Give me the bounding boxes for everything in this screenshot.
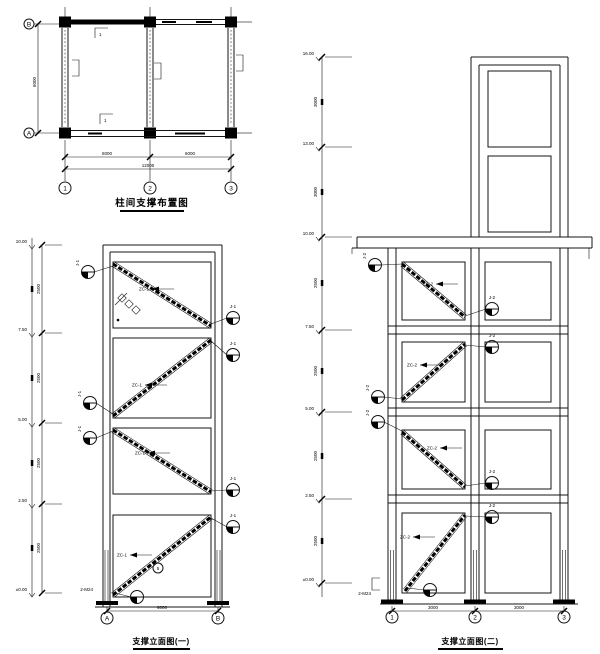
left-elev-dim-bottom-label: 6000 [157,605,168,610]
plan-row-grid-bubbles: B A [24,19,59,138]
dim-seg-label: 2500 [36,283,41,294]
plan-view: 1 1 B A 6000 6000 6 [24,7,252,211]
anchor-tag-label: 2-M24 [358,591,371,596]
brace-panel-1 [112,262,213,328]
grid-bubble-label: 3 [562,615,566,622]
plan-columns [59,17,237,139]
left-elevation: 10.00 7.50 5.00 2.50 ±0.00 2500 2500 250… [16,238,240,649]
grid-bubble-label: B [216,616,220,623]
grid-bubble-A-label: A [27,131,32,138]
plan-left-dimension: 6000 [32,21,41,136]
brace-panel-2 [112,338,213,418]
left-elev-title: 支撑立面图(一) [131,636,190,649]
left-elev-brace-tags: ZC-1 ZC-1 ZC-1 ZC-1 5 [117,287,174,574]
callout-label: J-1 [230,476,237,481]
brace-tag: ZC-2 [423,282,458,287]
detail-callout: J-1 [77,390,113,414]
right-elev-title-text: 支撑立面图(二) [440,636,498,646]
level-label: ±0.00 [303,577,315,582]
left-elev-weld-symbol-cluster [115,293,140,321]
level-label: 13.00 [303,141,315,146]
right-elev-braces [401,262,467,593]
dim-seg-label: 2500 [313,450,318,461]
callout-label: J-1 [230,304,237,309]
detail-callout: J-2 [465,469,499,490]
brace-panel-1 [401,262,467,319]
brace-panel-4 [404,513,467,593]
brace-tag: ZC-1 [117,553,152,558]
brace-panel-3 [401,430,467,489]
callout-label: J-1 [75,259,80,266]
section-mark-bottom-label: 1 [104,118,107,123]
right-elev-dim-seg1-label: 3000 [428,605,439,610]
detail-callout: J-1 [75,259,113,278]
anchor-tag-label: 2-M24 [80,587,93,592]
plan-dim-seg2-label: 6000 [185,151,196,156]
brace-tag-label: ZC-2 [427,446,437,451]
callout-label: J-1 [77,390,82,397]
level-label: 7.50 [18,327,27,332]
plan-column-lines [62,28,234,127]
plan-dim-total-label: 12000 [142,163,155,168]
brace-tag: ZC-2 [427,446,462,451]
callout-label: J-2 [489,295,496,300]
grid-bubble-3-label: 3 [229,186,233,193]
grid-bubble-B-label: B [27,22,31,29]
dim-seg-label: 2500 [36,372,41,383]
brace-panel-2 [401,342,467,402]
plan-bottom-dimensions: 6000 6000 12000 1 2 3 [59,140,237,194]
level-label: 10.00 [16,239,28,244]
right-elev-dim-seg2-label: 3000 [514,605,525,610]
plan-section-mark-top: 1 [95,28,108,38]
level-label: 2.50 [305,493,314,498]
plan-dim-left-label: 6000 [32,76,37,87]
right-elev-callouts: J-2 J-2 J-2 J-2 [362,252,499,596]
callout-label: J-2 [362,252,367,259]
section-mark-top-label: 1 [99,32,102,37]
brace-tag-label: ZC-2 [407,363,417,368]
callout-label: J-2 [489,333,496,338]
brace-tag-label: ZC-1 [117,553,127,558]
plan-title: 柱间支撑布置图 [115,197,189,211]
brace-tag-label: ZC-2 [400,535,410,540]
callout-label: J-2 [365,384,370,391]
callout-label: J-1 [77,425,82,432]
dim-seg-label: 2500 [36,542,41,553]
callout-label: J-2 [489,503,496,508]
detail-callout: J-1 [77,425,113,444]
level-label: 7.50 [305,324,314,329]
plan-beams [71,20,225,137]
left-elev-title-text: 支撑立面图(一) [131,636,189,646]
grid-bubble-label: A [105,616,110,623]
right-elev-dimension-column: 16.00 13.00 10.00 7.50 5.00 2.50 ±0.00 3… [303,51,352,597]
level-label: 2.50 [18,498,27,503]
grid-bubble-1-label: 1 [63,186,67,193]
grid-bubble-label: 2 [473,615,477,622]
drawing-svg: 1 1 B A 6000 6000 6 [0,0,600,654]
brace-tag: ZC-2 [400,535,435,540]
level-label: 10.00 [303,231,315,236]
brace-tag-label: ZC-2 [423,282,433,287]
right-elev-tower [471,57,568,237]
right-elev-bottom-grid: 3000 3000 1 2 3 [386,605,570,623]
plan-grid-extensions [65,7,252,133]
dim-seg-label: 2500 [313,365,318,376]
right-elev-bases: 2-M24 [358,550,575,604]
right-elev-frame [380,248,578,604]
brace-tag: ZC-2 [407,363,442,368]
level-label: 16.00 [303,51,315,56]
right-elev-title: 支撑立面图(二) [438,636,503,649]
circled-mark-label: 5 [157,566,160,571]
level-label: ±0.00 [16,587,28,592]
brace-panel-3 [112,428,213,494]
cad-drawing-sheet: 1 1 B A 6000 6000 6 [0,0,600,654]
level-label: 5.00 [305,406,314,411]
plan-title-text: 柱间支撑布置图 [115,197,189,209]
plan-section-mark-bottom: 1 [100,114,113,124]
detail-callout: J-2 [465,333,499,354]
brace-tag-label: ZC-1 [135,451,145,456]
dim-seg-label: 2500 [36,457,41,468]
callout-label: J-1 [230,513,237,518]
detail-callout: J-2 [465,295,499,316]
right-elevation: 16.00 13.00 10.00 7.50 5.00 2.50 ±0.00 3… [303,51,592,649]
callout-label: J-2 [489,469,496,474]
dim-seg-label: 2500 [313,277,318,288]
brace-tag-label: ZC-1 [132,383,142,388]
callout-label: J-1 [230,341,237,346]
dim-seg-label: 3000 [313,186,318,197]
plan-dim-seg1-label: 6000 [102,151,113,156]
dim-seg-label: 2500 [313,535,318,546]
left-elev-braces [112,262,213,597]
grid-bubble-2-label: 2 [148,186,152,193]
left-elev-bottom-grid: 6000 A B [101,605,224,624]
left-elev-dimension-column: 10.00 7.50 5.00 2.50 ±0.00 2500 2500 250… [16,238,62,597]
grid-bubble-label: 1 [390,615,394,622]
plan-support-brackets [72,55,243,79]
brace-tag-label: ZC-1 [139,287,149,292]
dim-seg-label: 3000 [313,96,318,107]
level-label: 5.00 [18,417,27,422]
callout-label: J-2 [365,409,370,416]
